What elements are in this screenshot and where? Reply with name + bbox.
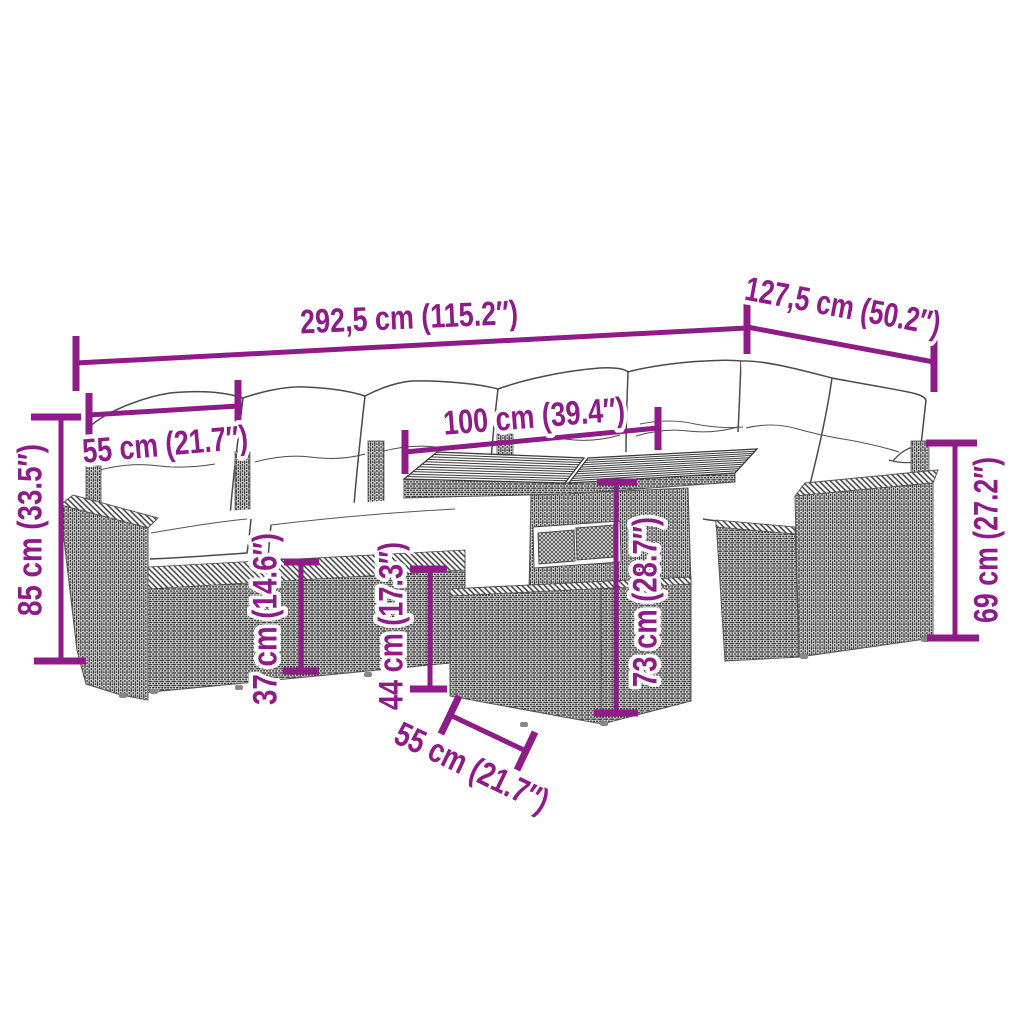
svg-text:73 cm (28.7″): 73 cm (28.7″) bbox=[627, 517, 665, 687]
svg-text:85 cm (33.5″): 85 cm (33.5″) bbox=[12, 444, 50, 616]
svg-text:69 cm (27.2″): 69 cm (27.2″) bbox=[968, 457, 1006, 623]
svg-text:37 cm (14.6″): 37 cm (14.6″) bbox=[247, 533, 285, 705]
svg-text:44 cm (17.3″): 44 cm (17.3″) bbox=[373, 542, 411, 710]
